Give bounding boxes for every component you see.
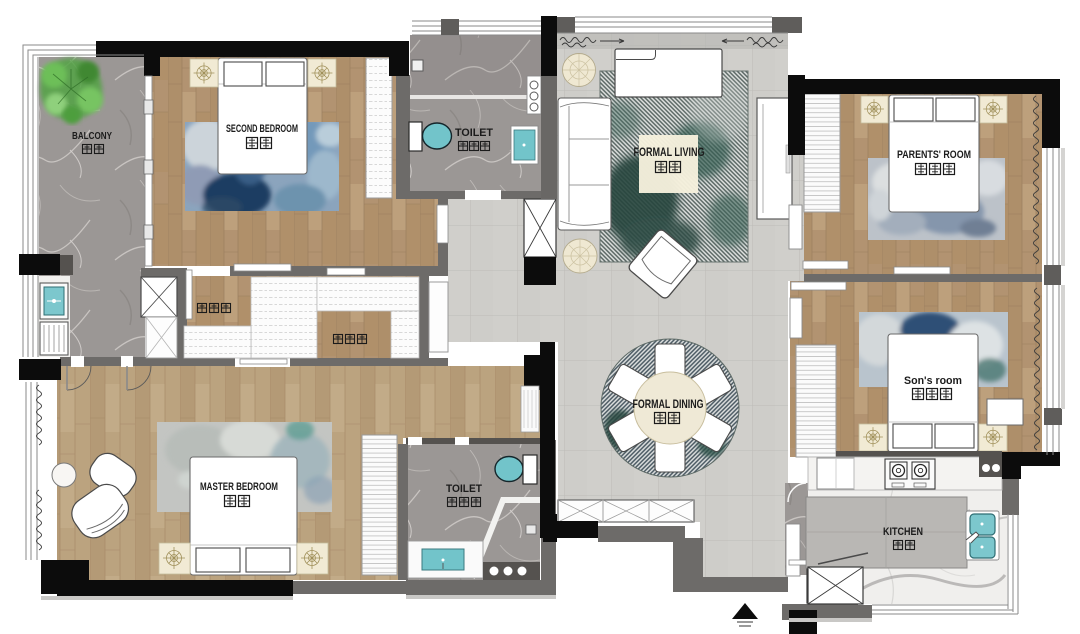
svg-text:SECOND BEDROOM: SECOND BEDROOM: [226, 123, 298, 135]
svg-text:FORMAL LIVING: FORMAL LIVING: [634, 145, 705, 159]
svg-text:KITCHEN: KITCHEN: [883, 526, 923, 538]
svg-text:MASTER BEDROOM: MASTER BEDROOM: [200, 481, 278, 493]
svg-text:FORMAL DINING: FORMAL DINING: [633, 397, 704, 411]
svg-text:TOILET: TOILET: [446, 483, 482, 495]
svg-text:Son's room: Son's room: [904, 375, 962, 387]
svg-text:BALCONY: BALCONY: [72, 130, 112, 142]
svg-text:TOILET: TOILET: [455, 127, 493, 139]
svg-text:PARENTS' ROOM: PARENTS' ROOM: [897, 149, 971, 161]
